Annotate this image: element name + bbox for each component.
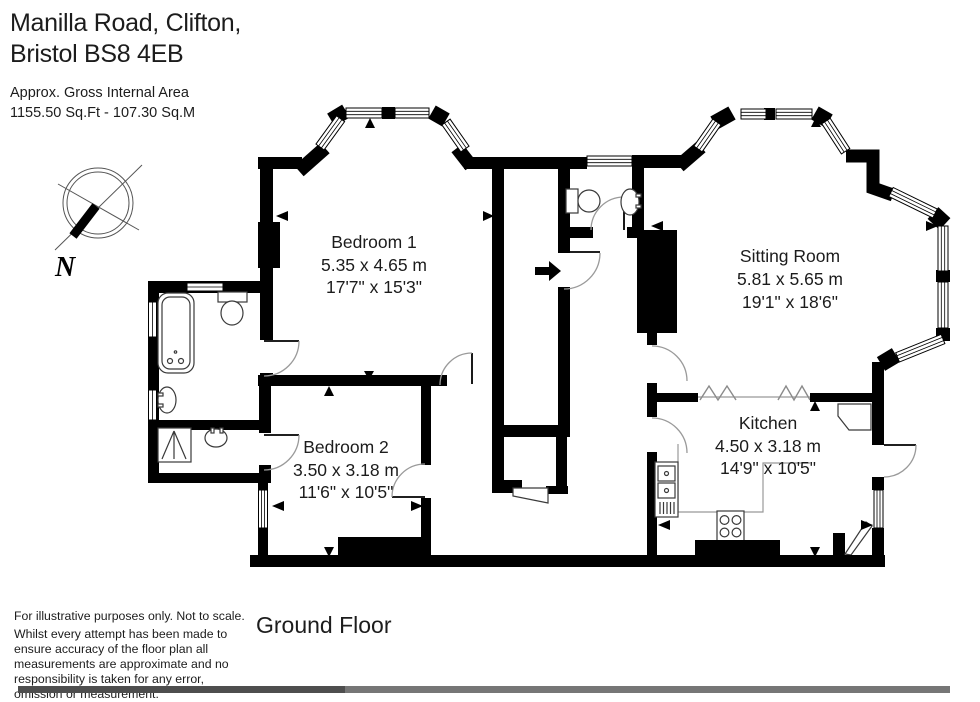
window [587, 156, 632, 166]
hallway-walls [492, 169, 570, 494]
room-imperial: 17'7" x 15'3" [326, 277, 422, 297]
entrance-arrow-icon [535, 261, 561, 281]
window [149, 302, 157, 337]
room-metric: 5.81 x 5.65 m [737, 269, 843, 289]
window [346, 108, 382, 118]
window [442, 119, 469, 152]
window [149, 390, 157, 420]
kitchen-sink-icon [655, 462, 678, 517]
closet-door [513, 488, 548, 503]
room-metric: 3.50 x 3.18 m [293, 460, 399, 480]
window [822, 118, 850, 154]
room-metric: 4.50 x 3.18 m [715, 436, 821, 456]
shower-tray-icon [158, 428, 191, 462]
bedroom2-label: Bedroom 2 3.50 x 3.18 m 11'6" x 10'5" [293, 437, 399, 502]
room-name: Bedroom 1 [331, 232, 417, 252]
window [938, 226, 948, 271]
window [395, 108, 429, 118]
window [896, 334, 945, 362]
sitting-room-label: Sitting Room 5.81 x 5.65 m 19'1" x 18'6" [737, 246, 843, 312]
kitchen-cupboard [838, 404, 871, 430]
floor-plan: N [0, 0, 980, 693]
kitchen-door [652, 418, 687, 453]
wc-toilet-icon [566, 189, 600, 213]
room-name: Sitting Room [740, 246, 840, 266]
window [889, 188, 937, 218]
kitchen-label: Kitchen 4.50 x 3.18 m 14'9" x 10'5" [715, 413, 821, 478]
bedroom1-walls [258, 107, 587, 386]
bathroom-sink-icon [158, 387, 176, 413]
sitting-room-rear-door [884, 445, 916, 477]
window [741, 109, 766, 119]
compass-north-label: N [54, 252, 77, 283]
window [694, 119, 721, 152]
room-metric: 5.35 x 4.65 m [321, 255, 427, 275]
hob-icon [717, 511, 744, 541]
bedroom1-label: Bedroom 1 5.35 x 4.65 m 17'7" x 15'3" [321, 232, 427, 297]
shower-room-sink-icon [205, 428, 227, 447]
room-name: Kitchen [739, 413, 797, 433]
sitting-room-door [652, 346, 687, 381]
bathroom-toilet-icon [218, 292, 247, 325]
window [187, 283, 223, 291]
room-name: Bedroom 2 [303, 437, 389, 457]
bathroom-door [264, 341, 299, 376]
disclaimer-short: For illustrative purposes only. Not to s… [14, 609, 245, 623]
bottom-edge-bar-dark [18, 686, 345, 693]
window [259, 490, 268, 528]
room-imperial: 11'6" x 10'5" [299, 482, 394, 502]
compass-icon: N [54, 165, 142, 283]
bathtub-icon [158, 293, 194, 373]
window [938, 282, 948, 328]
window [316, 116, 345, 150]
sitting-room-walls [637, 108, 950, 555]
room-imperial: 19'1" x 18'6" [742, 292, 838, 312]
kitchen-window [874, 490, 883, 528]
window [776, 109, 812, 119]
room-imperial: 14'9" x 10'5" [720, 458, 816, 478]
front-door [564, 252, 600, 289]
floor-title: Ground Floor [256, 612, 392, 639]
sitting-room-bay-windows [694, 109, 948, 362]
